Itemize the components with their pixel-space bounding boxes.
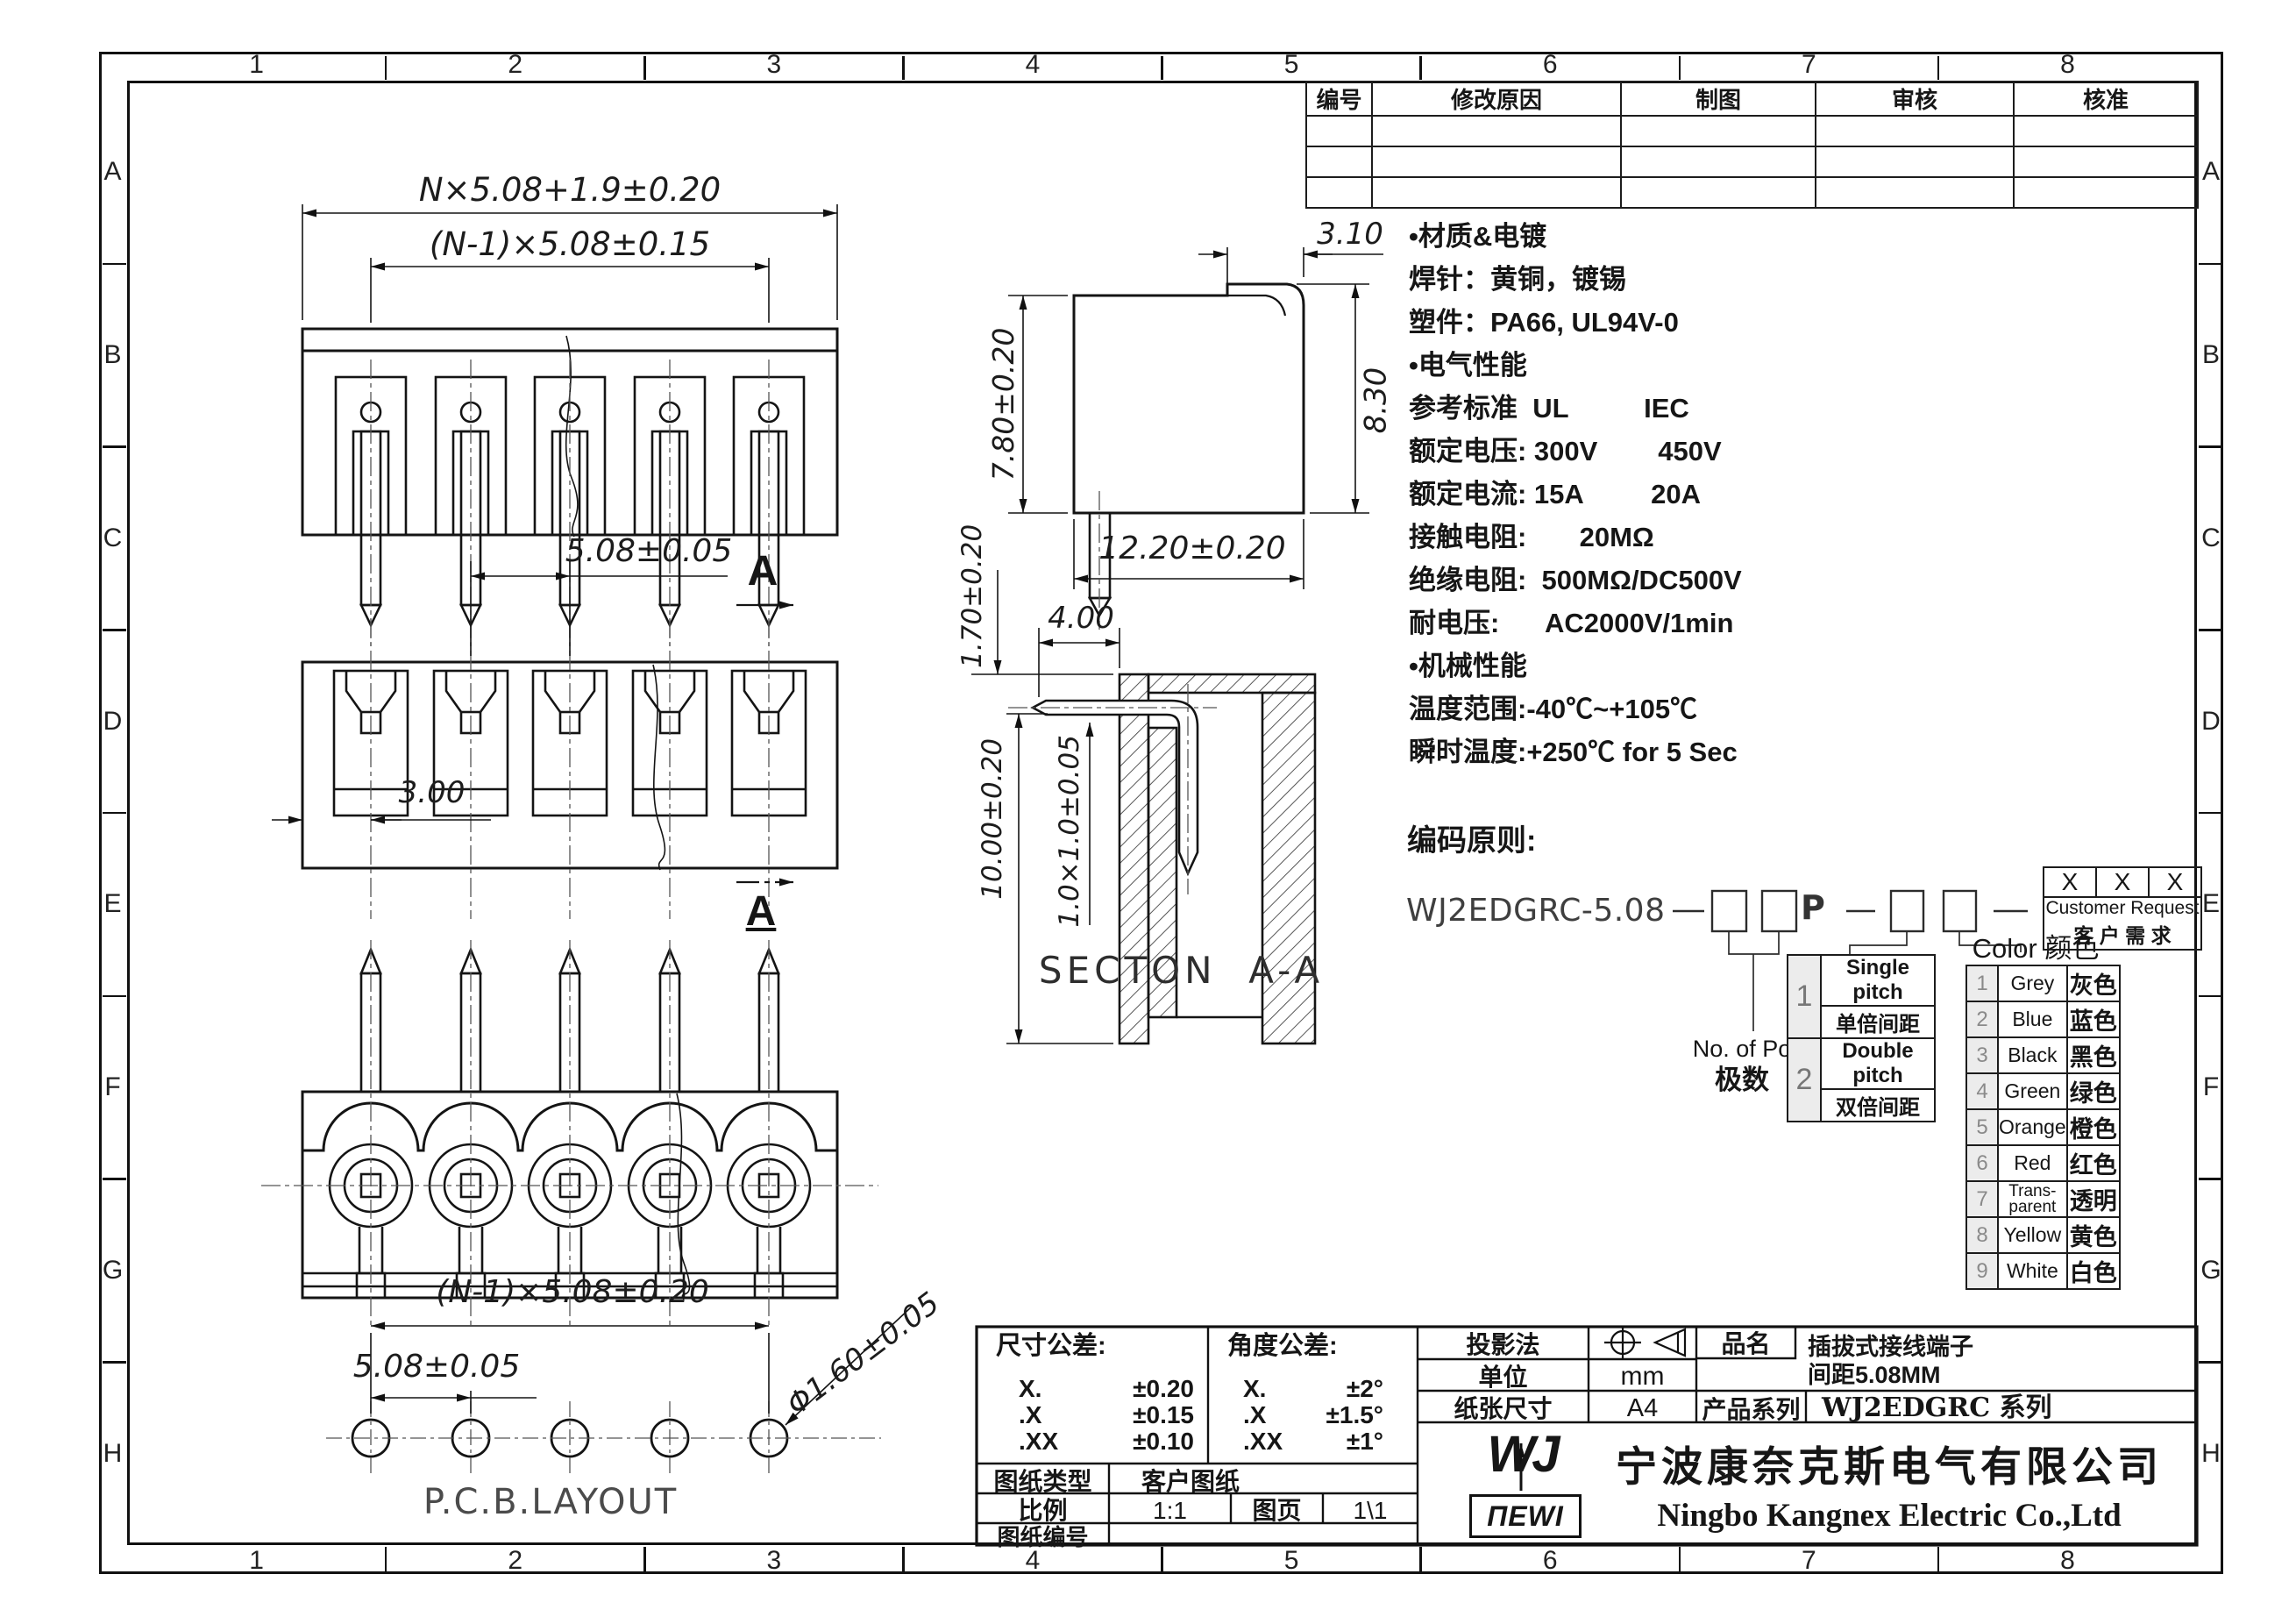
color-no: 7	[1966, 1181, 1998, 1217]
dim-bottom-pitch: 5.08±0.05	[539, 533, 758, 569]
color-no: 5	[1966, 1109, 1998, 1145]
unit-label: 单位	[1418, 1364, 1589, 1392]
spec-line: 焊针：黄铜，镀锡	[1409, 264, 1742, 307]
color-cn: 蓝色	[2067, 1001, 2120, 1037]
paper-size-value: A4	[1589, 1394, 1696, 1423]
spec-line: 温度范围:-40℃~+105℃	[1409, 694, 1742, 737]
drawing-no-label: 图纸编号	[977, 1525, 1109, 1551]
color-no: 9	[1966, 1253, 1998, 1289]
section-title: SECTON A-A	[1030, 950, 1333, 992]
dim-front-overall: N×5.08+1.9±0.20	[368, 172, 771, 210]
product-series-value: WJ2EDGRC 系列	[1822, 1393, 2052, 1424]
dim-section-d: 1.0×1.0±0.05	[1055, 722, 1086, 941]
dim-pcb-overall: (N-1)×5.08±0.20	[375, 1274, 770, 1310]
coding-p-suffix: P	[1801, 889, 1825, 928]
dim-section-c: 10.00±0.20	[977, 718, 1009, 920]
revision-empty-row	[1306, 177, 2198, 208]
dim-section-a: 1.70±0.20	[957, 509, 989, 684]
dim-pcb-pitch: 5.08±0.05	[331, 1349, 542, 1385]
color-en: Red	[1998, 1145, 2067, 1181]
tol-val: ±0.20	[1133, 1375, 1194, 1403]
customer-x: X	[2149, 867, 2201, 897]
paper-size-label: 纸张尺寸	[1418, 1395, 1589, 1423]
revision-col-header: 修改原因	[1372, 82, 1621, 116]
coding-part-number: WJ2EDGRC-5.08	[1406, 893, 1665, 929]
tol-val: ±0.15	[1133, 1401, 1194, 1429]
revision-col-header: 审核	[1816, 82, 2014, 116]
color-en: Grey	[1998, 965, 2067, 1001]
kangnex-logo-monogram: WJ	[1482, 1426, 1562, 1485]
sheet-value: 1\1	[1323, 1497, 1418, 1525]
color-en: Black	[1998, 1037, 2067, 1073]
kangnex-logo-wordmark: ПEWI	[1469, 1494, 1582, 1538]
sheet-label: 图页	[1231, 1497, 1323, 1525]
dim-side-right: 8.30	[1359, 335, 1393, 467]
tol-val: ±0.10	[1133, 1428, 1194, 1456]
revision-col-header: 制图	[1621, 82, 1816, 116]
color-en: White	[1998, 1253, 2067, 1289]
dim-side-left: 7.80±0.20	[987, 317, 1020, 492]
color-cn: 透明	[2067, 1181, 2120, 1217]
spec-line: •电气性能	[1409, 350, 1742, 393]
pitch-cn: 单倍间距	[1821, 1006, 1935, 1038]
color-code-table: 1Grey灰色 2Blue蓝色 3Black黑色 4Green绿色 5Orang…	[1965, 965, 2121, 1290]
tol-val: ±2°	[1347, 1375, 1383, 1403]
color-cn: 白色	[2067, 1253, 2120, 1289]
drawing-type-value: 客户图纸	[1141, 1468, 1240, 1496]
pitch-code: 1	[1788, 955, 1821, 1038]
scale-label: 比例	[977, 1497, 1109, 1525]
tol-val: ±1°	[1347, 1428, 1383, 1456]
coding-title: 编码原则:	[1407, 824, 1536, 858]
spec-line: 瞬时温度:+250℃ for 5 Sec	[1409, 737, 1742, 780]
bottom-view	[272, 561, 837, 919]
pitch-en: Single pitch	[1821, 955, 1935, 1006]
spec-line: 额定电压: 300V 450V	[1409, 436, 1742, 479]
pitch-en: Double pitch	[1821, 1038, 1935, 1089]
tol-val: ±1.5°	[1326, 1401, 1384, 1429]
tol-key: X.	[1019, 1375, 1041, 1403]
color-cn: 绿色	[2067, 1073, 2120, 1109]
color-cn: 黄色	[2067, 1217, 2120, 1253]
color-no: 2	[1966, 1001, 1998, 1037]
dim-tolerance-title: 尺寸公差:	[996, 1332, 1106, 1361]
spec-line: 绝缘电阻: 500MΩ/DC500V	[1409, 565, 1742, 608]
spec-line: 额定电流: 15A 20A	[1409, 479, 1742, 522]
spec-text-block: •材质&电镀 焊针：黄铜，镀锡 塑件：PA66, UL94V-0 •电气性能 参…	[1409, 221, 1742, 780]
color-en: Blue	[1998, 1001, 2067, 1037]
spec-line: •材质&电镀	[1409, 221, 1742, 264]
customer-request-table: X X X Customer Request 客 户 需 求	[2043, 866, 2202, 951]
dim-bottom-edge: 3.00	[377, 776, 487, 810]
dim-side-bottom: 12.20±0.20	[1087, 531, 1297, 566]
angle-tolerance-rows: X.±2° .X±1.5° .XX±1°	[1243, 1377, 1383, 1455]
tol-key: .X	[1019, 1401, 1041, 1429]
color-no: 6	[1966, 1145, 1998, 1181]
customer-x: X	[2044, 867, 2096, 897]
pitch-code-table: 1 Single pitch 单倍间距 2 Double pitch 双倍间距	[1787, 954, 1936, 1122]
color-no: 1	[1966, 965, 1998, 1001]
color-en: Yellow	[1998, 1217, 2067, 1253]
dim-side-top: 3.10	[1297, 217, 1403, 252]
tol-key: .XX	[1019, 1428, 1058, 1456]
color-no: 4	[1966, 1073, 1998, 1109]
section-marker-bottom: A	[735, 887, 787, 936]
color-no: 3	[1966, 1037, 1998, 1073]
revision-empty-row	[1306, 146, 2198, 177]
customer-request-en: Customer Request	[2044, 898, 2200, 919]
spec-line: •机械性能	[1409, 651, 1742, 694]
tol-key: .X	[1243, 1401, 1266, 1429]
tol-key: X.	[1243, 1375, 1266, 1403]
color-cn: 黑色	[2067, 1037, 2120, 1073]
section-marker-top: A	[736, 547, 789, 595]
angle-tolerance-title: 角度公差:	[1227, 1332, 1338, 1361]
drawing-type-label: 图纸类型	[977, 1468, 1109, 1496]
color-en: Orange	[1998, 1109, 2067, 1145]
product-name-line2: 间距5.08MM	[1808, 1362, 1941, 1389]
projection-symbol	[1604, 1326, 1685, 1359]
revision-empty-row	[1306, 116, 2198, 146]
product-name-line1: 插拔式接线端子	[1808, 1334, 1973, 1361]
spec-line: 塑件：PA66, UL94V-0	[1409, 307, 1742, 350]
spec-line: 参考标准 UL IEC	[1409, 393, 1742, 436]
drawing-sheet: 1122334455667788AABBCCDDEEFFGGHH	[0, 0, 2296, 1624]
dim-tolerance-rows: X.±0.20 .X±0.15 .XX±0.10	[1019, 1377, 1194, 1455]
spec-line: 耐电压: AC2000V/1min	[1409, 608, 1742, 651]
customer-request-cn: 客 户 需 求	[2044, 919, 2200, 949]
color-cn: 红色	[2067, 1145, 2120, 1181]
spec-line: 接触电阻: 20MΩ	[1409, 522, 1742, 565]
product-name-label: 品名	[1696, 1330, 1795, 1358]
dim-front-pitch: (N-1)×5.08±0.15	[377, 226, 763, 264]
company-name-en: Ningbo Kangnex Electric Co.,Ltd	[1596, 1498, 2183, 1535]
color-en: Trans-parent	[1998, 1181, 2067, 1217]
pitch-code: 2	[1788, 1038, 1821, 1122]
unit-value: mm	[1589, 1362, 1696, 1393]
back-view	[261, 940, 878, 1326]
revision-col-header: 编号	[1306, 82, 1372, 116]
projection-label: 投影法	[1418, 1331, 1589, 1359]
color-cn: 灰色	[2067, 965, 2120, 1001]
scale-value: 1:1	[1109, 1497, 1231, 1525]
revision-col-header: 核准	[2014, 82, 2198, 116]
color-cn: 橙色	[2067, 1109, 2120, 1145]
color-no: 8	[1966, 1217, 1998, 1253]
company-name-cn: 宁波康奈克斯电气有限公司	[1596, 1443, 2183, 1491]
dim-section-b: 4.00	[1028, 602, 1134, 636]
pcb-layout-title: P.C.B.LAYOUT	[415, 1482, 686, 1522]
pitch-cn: 双倍间距	[1821, 1089, 1935, 1122]
color-en: Green	[1998, 1073, 2067, 1109]
product-series-label: 产品系列	[1696, 1396, 1806, 1424]
tol-key: .XX	[1243, 1428, 1283, 1456]
side-view	[1008, 247, 1383, 630]
revision-table: 编号 修改原因 制图 审核 核准	[1305, 81, 2199, 209]
customer-x: X	[2096, 867, 2149, 897]
